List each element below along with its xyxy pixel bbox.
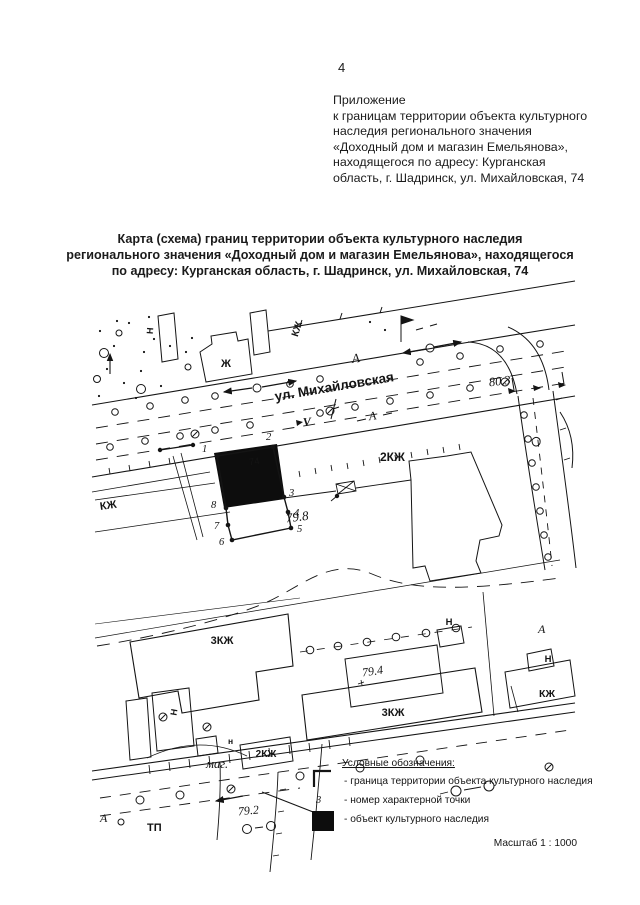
point-number-8: 8	[211, 500, 217, 511]
right-lane	[483, 592, 575, 716]
heritage-object-territory	[158, 443, 294, 543]
building-label-kzh-left: КЖ	[99, 499, 117, 513]
legend-boundary-symbol	[314, 771, 331, 787]
elevation-79-4: 79.4	[361, 663, 384, 680]
point-number-2: 2	[266, 432, 272, 443]
letter-a-lane: А	[537, 622, 546, 636]
point-number-6: 6	[219, 537, 225, 548]
building-label-3kzh-south: 3КЖ	[382, 707, 405, 719]
legend-item-point: - номер характерной точки	[344, 795, 470, 806]
kzh3-complex	[130, 614, 482, 740]
legend-item-object: - объект культурного наследия	[344, 813, 489, 825]
legend-point-symbol: 3	[315, 795, 321, 806]
building-label-kzh-lane: КЖ	[539, 688, 555, 700]
letter-a-bottom: А	[99, 811, 108, 825]
point-number-1: 1	[202, 444, 207, 455]
building-label-n-lane: Н	[545, 654, 552, 665]
building-label-n-top: Н	[145, 327, 156, 334]
legend-heading: Условные обозначения:	[342, 757, 455, 769]
building-label-3kzh-west: 3КЖ	[211, 635, 234, 647]
building-label-2kzh-main: 2КЖ	[380, 450, 405, 464]
scale-label: Масштаб 1 : 1000	[494, 837, 578, 849]
letter-a-lower: А	[367, 408, 378, 423]
letter-a-upper: А	[350, 350, 361, 366]
object-house-number: 74	[248, 456, 260, 469]
building-label-n-bottom: н	[228, 736, 233, 746]
street-name-label: ул. Михайловская	[274, 369, 395, 404]
label-tp: ТП	[147, 822, 162, 834]
street-mikhailovskaya	[92, 325, 575, 492]
elevation-79-2: 79.2	[237, 802, 259, 818]
v-mark: V	[302, 414, 312, 429]
shop-label-mag: маг.	[205, 757, 228, 771]
point-number-7: 7	[214, 521, 220, 532]
side-street	[518, 391, 576, 570]
point-number-5: 5	[297, 524, 302, 535]
elevation-79-8: 79.8	[285, 508, 310, 526]
map-scheme: Ж Н КЖ	[0, 0, 640, 905]
building-label-zh: Ж	[220, 358, 231, 370]
building-label-2kzh-small: 2КЖ	[256, 749, 278, 760]
legend-object-symbol	[312, 811, 334, 831]
building-label-n-yard: Н	[446, 617, 453, 628]
building-label-n-small: Н	[168, 708, 179, 716]
building-label-kzh-top: КЖ	[290, 319, 305, 338]
elevation-80-3: 80.3	[488, 373, 511, 390]
legend-item-boundary: - граница территории объекта культурного…	[344, 775, 593, 787]
south-yards	[95, 452, 560, 646]
